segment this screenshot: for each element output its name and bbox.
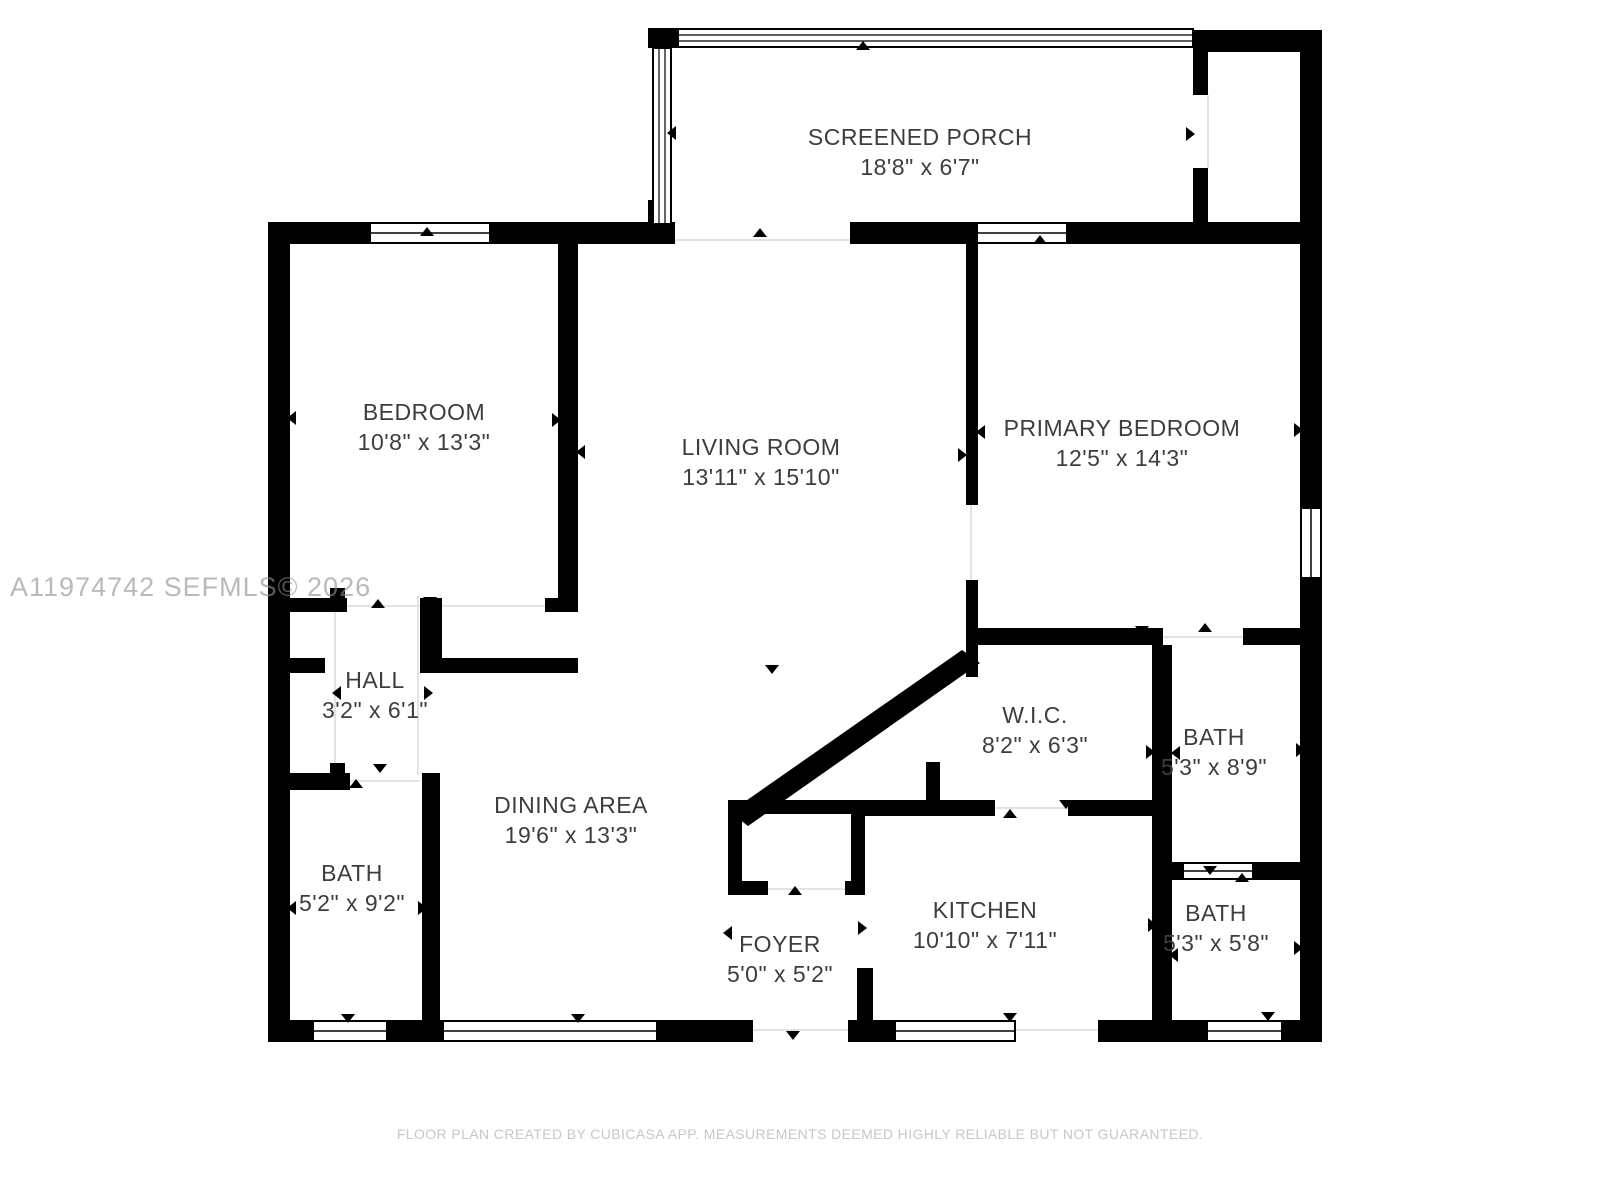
- room-name: BATH: [299, 858, 405, 888]
- room-label-screened-porch: SCREENED PORCH18'8" x 6'7": [808, 122, 1032, 182]
- room-name: KITCHEN: [913, 895, 1057, 925]
- room-name: BATH: [1163, 898, 1269, 928]
- room-dims: 3'2" x 6'1": [322, 695, 428, 725]
- marker-triangle: [1198, 623, 1212, 632]
- room-dims: 19'6" x 13'3": [494, 820, 648, 850]
- room-dims: 5'2" x 9'2": [299, 888, 405, 918]
- marker-triangle: [765, 665, 779, 674]
- room-label-bath-primary: BATH5'3" x 8'9": [1161, 722, 1267, 782]
- room-name: PRIMARY BEDROOM: [1004, 413, 1241, 443]
- room-dims: 5'3" x 5'8": [1163, 928, 1269, 958]
- room-dims: 5'3" x 8'9": [1161, 752, 1267, 782]
- footer-disclaimer: FLOOR PLAN CREATED BY CUBICASA APP. MEAS…: [0, 1126, 1600, 1142]
- marker-triangle: [786, 1031, 800, 1040]
- room-label-bath-small: BATH5'3" x 5'8": [1163, 898, 1269, 958]
- room-label-bedroom: BEDROOM10'8" x 13'3": [358, 397, 491, 457]
- room-label-living-room: LIVING ROOM13'11" x 15'10": [682, 432, 841, 492]
- mls-watermark: A11974742 SEFMLS© 2026: [10, 572, 371, 603]
- room-dims: 10'10" x 7'11": [913, 925, 1057, 955]
- room-label-foyer: FOYER5'0" x 5'2": [727, 929, 833, 989]
- room-label-bath-left: BATH5'2" x 9'2": [299, 858, 405, 918]
- room-name: SCREENED PORCH: [808, 122, 1032, 152]
- floor-plan: SCREENED PORCH18'8" x 6'7" BEDROOM10'8" …: [0, 0, 1600, 1200]
- room-name: FOYER: [727, 929, 833, 959]
- room-name: DINING AREA: [494, 790, 648, 820]
- room-name: HALL: [322, 665, 428, 695]
- room-label-hall: HALL3'2" x 6'1": [322, 665, 428, 725]
- room-label-dining-area: DINING AREA19'6" x 13'3": [494, 790, 648, 850]
- marker-triangle: [371, 599, 385, 608]
- room-dims: 18'8" x 6'7": [808, 152, 1032, 182]
- marker-triangle: [753, 228, 767, 237]
- room-dims: 13'11" x 15'10": [682, 462, 841, 492]
- room-name: BATH: [1161, 722, 1267, 752]
- room-label-primary-bedroom: PRIMARY BEDROOM12'5" x 14'3": [1004, 413, 1241, 473]
- marker-triangle: [1261, 1012, 1275, 1021]
- marker-triangle: [958, 448, 967, 462]
- room-name: LIVING ROOM: [682, 432, 841, 462]
- marker-triangle: [373, 764, 387, 773]
- marker-triangle: [1186, 127, 1195, 141]
- room-dims: 8'2" x 6'3": [982, 730, 1088, 760]
- marker-triangle: [858, 921, 867, 935]
- room-dims: 10'8" x 13'3": [358, 427, 491, 457]
- marker-triangle: [1003, 809, 1017, 818]
- room-name: BEDROOM: [358, 397, 491, 427]
- room-name: W.I.C.: [982, 700, 1088, 730]
- room-dims: 12'5" x 14'3": [1004, 443, 1241, 473]
- room-label-wic: W.I.C.8'2" x 6'3": [982, 700, 1088, 760]
- room-dims: 5'0" x 5'2": [727, 959, 833, 989]
- marker-triangle: [788, 886, 802, 895]
- room-label-kitchen: KITCHEN10'10" x 7'11": [913, 895, 1057, 955]
